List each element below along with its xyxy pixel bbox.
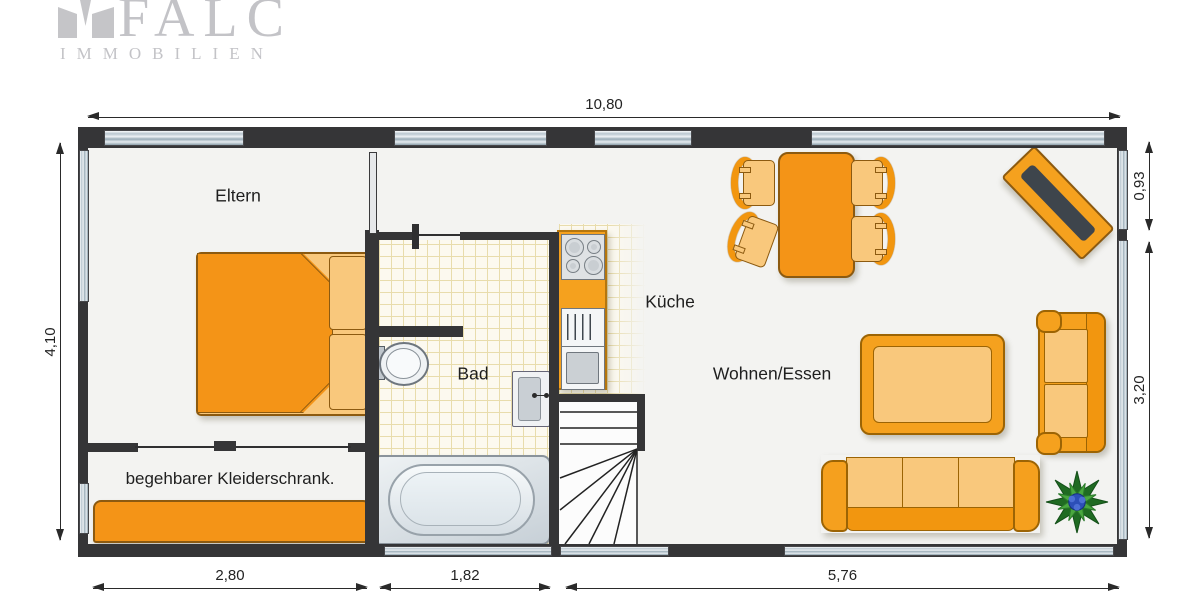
loveseat-armrest — [1036, 432, 1062, 455]
stove-burner-small-bl — [566, 259, 580, 273]
wall-bathroom-west — [365, 230, 379, 545]
sofa-backrest — [846, 507, 1015, 531]
stove-burner-small-tr — [587, 240, 601, 254]
bathroom-door-post — [412, 224, 419, 249]
bed-pillow-bottom — [329, 334, 367, 410]
wall-bathroom-top-b — [460, 232, 549, 240]
bedroom-door-leaf — [369, 152, 377, 234]
kitchen-tiles-fade — [610, 224, 650, 394]
dim-left-label: 4,10 — [42, 327, 59, 356]
wall-closet-a — [88, 443, 138, 452]
room-label-kueche: Küche — [645, 292, 695, 313]
wardrobe — [93, 500, 371, 543]
washbasin-faucet — [535, 395, 546, 396]
sofa-armrest-left — [821, 460, 848, 532]
dim-bottom-left-label: 2,80 — [215, 567, 244, 584]
closet-opening-line — [135, 446, 351, 448]
potted-plant — [1045, 470, 1109, 534]
window-bottom-bath — [384, 546, 552, 556]
window-left-closet — [79, 483, 89, 534]
kitchen-drainer-ribs — [567, 314, 597, 340]
stove-burner-large-br — [584, 256, 603, 275]
chair-armrest — [875, 193, 887, 199]
dim-right-top-label: 0,93 — [1131, 171, 1148, 200]
chair-armrest — [875, 223, 887, 229]
window-right-lower — [1118, 240, 1128, 540]
bathroom-door-threshold — [415, 234, 460, 236]
loveseat-sofa — [1038, 312, 1106, 453]
dining-chair-top-left — [731, 157, 777, 209]
coffee-table — [860, 334, 1005, 435]
chair-armrest — [875, 249, 887, 255]
room-label-wohnen: Wohnen/Essen — [713, 364, 831, 385]
wall-bathroom-top-a — [379, 232, 415, 240]
sofa-cushion — [958, 457, 1015, 508]
dining-chair-bottom-right — [849, 213, 895, 265]
window-bottom-stairs — [560, 546, 669, 556]
chair-armrest — [875, 167, 887, 173]
window-top-3 — [594, 130, 692, 146]
chair-armrest — [739, 193, 751, 199]
dim-bottom-mid-label: 1,82 — [450, 567, 479, 584]
closet-door-nub — [214, 441, 236, 451]
bed-pillow-top — [329, 256, 367, 330]
staircase — [559, 394, 638, 545]
wall-kitchen-west — [549, 232, 559, 545]
coffee-table-top — [873, 346, 992, 423]
wall-stairs-east — [637, 394, 645, 451]
dining-table — [778, 152, 855, 278]
loveseat-backrest — [1086, 314, 1104, 451]
dim-bottom-right-label: 5,76 — [828, 567, 857, 584]
window-top-1 — [104, 130, 244, 146]
toilet-bowl-inner — [386, 348, 421, 379]
loveseat-armrest — [1036, 310, 1062, 333]
sofa-cushion — [902, 457, 959, 508]
dining-chair-top-right — [849, 157, 895, 209]
room-label-eltern: Eltern — [215, 186, 261, 207]
wall-toilet-partition — [365, 326, 463, 337]
dim-right-bottom-label: 3,20 — [1131, 375, 1148, 404]
window-right-upper — [1118, 150, 1128, 230]
sofa-cushion — [846, 457, 903, 508]
loveseat-cushion — [1044, 384, 1088, 438]
bathtub-basin — [400, 472, 521, 526]
loveseat-cushion — [1044, 329, 1088, 383]
room-label-bad: Bad — [457, 364, 488, 385]
window-top-4 — [811, 130, 1105, 146]
three-seat-sofa — [821, 455, 1040, 533]
washbasin-inner — [518, 377, 541, 421]
dim-top-label: 10,80 — [585, 96, 623, 113]
kitchen-sink-basin — [566, 352, 599, 384]
window-top-2 — [394, 130, 547, 146]
bed-blanket — [197, 253, 333, 413]
floor-plan: Eltern Bad Küche Wohnen/Essen begehbarer… — [0, 0, 1200, 600]
wall-stairs-top — [549, 394, 645, 402]
wall-closet-b — [348, 443, 368, 452]
window-bottom-living — [784, 546, 1114, 556]
stove-burner-large-tl — [565, 238, 584, 257]
sofa-armrest-right — [1013, 460, 1040, 532]
window-left-bedroom — [79, 150, 89, 302]
chair-armrest — [739, 167, 751, 173]
room-label-closet: begehbarer Kleiderschrank. — [126, 469, 335, 489]
